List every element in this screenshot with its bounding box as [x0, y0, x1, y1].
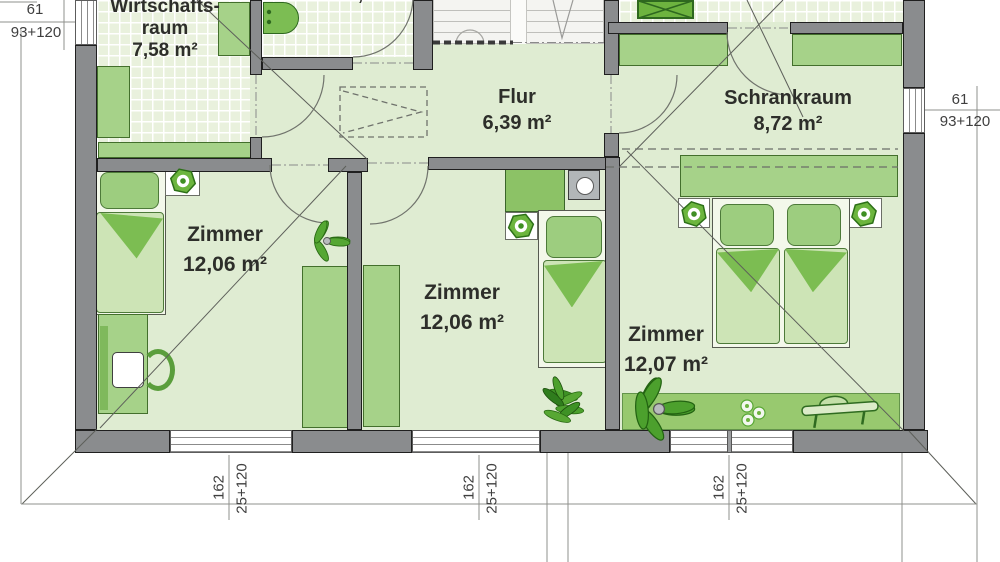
window — [170, 430, 292, 453]
room-label-schrankraum: Schrankraum 8,72 m² — [698, 85, 878, 137]
cabinet — [505, 165, 565, 212]
pillow — [720, 204, 774, 246]
dim-bottom-window-2-detail: 25+120 — [484, 449, 501, 529]
dim-bottom-window-3-detail: 25+120 — [734, 449, 751, 529]
blanket-fold — [717, 249, 779, 292]
dim-right-window-detail: 93+120 — [928, 113, 1000, 130]
wall — [75, 430, 170, 453]
dim-right-window-width: 61 — [938, 91, 982, 108]
wall — [97, 158, 272, 172]
shower-icon — [637, 0, 694, 19]
pillow — [100, 172, 159, 209]
toilet-icon — [263, 2, 299, 34]
chair — [112, 352, 144, 388]
wall — [604, 0, 619, 75]
chimney-icon — [568, 170, 600, 200]
wall — [413, 0, 433, 70]
wall — [292, 430, 412, 453]
room-label-zimmer-links: Zimmer 12,06 m² — [155, 220, 295, 281]
closet — [619, 34, 728, 66]
room-label-bad: 4,76 m² — [330, 0, 430, 6]
blanket-fold — [785, 249, 847, 292]
wall — [347, 172, 362, 430]
desk-edge — [100, 326, 108, 410]
wall — [75, 45, 97, 430]
nightstand — [678, 198, 710, 228]
mattress — [784, 248, 848, 344]
dim-left-window-detail: 93+120 — [2, 24, 70, 41]
chair-back — [141, 349, 175, 391]
wall — [262, 57, 353, 70]
room-area: 12,06 m² — [155, 250, 295, 280]
wall — [605, 157, 620, 430]
dim-bottom-window-2-width: 162 — [461, 448, 478, 528]
nightstand — [848, 198, 882, 228]
wall — [540, 430, 670, 453]
mattress — [96, 212, 164, 313]
wall — [790, 22, 903, 34]
closet — [792, 34, 902, 66]
wall — [428, 157, 608, 170]
room-label-zimmer-mitte: Zimmer 12,06 m² — [392, 278, 532, 339]
dim-bottom-window-1-width: 162 — [211, 448, 228, 528]
room-area: 8,72 m² — [698, 111, 878, 137]
dim-left-window-width: 61 — [10, 1, 60, 18]
pillow — [787, 204, 841, 246]
room-area: 12,06 m² — [392, 308, 532, 338]
wardrobe — [680, 155, 898, 197]
wall — [608, 22, 728, 34]
wall — [903, 133, 925, 430]
room-area: 4,76 m² — [330, 0, 430, 6]
window — [903, 88, 925, 133]
room-area: 7,58 m² — [85, 40, 245, 62]
wall — [604, 133, 619, 157]
dim-bottom-window-3-width: 162 — [711, 448, 728, 528]
dim-bottom-window-1-detail: 25+120 — [234, 449, 251, 529]
bedroom-rug — [622, 393, 900, 430]
room-label-flur: Flur 6,39 m² — [457, 84, 577, 136]
blanket-fold — [97, 213, 163, 259]
floor-plan: Wirtschafts- raum 7,58 m² 4,76 m² Flur 6… — [0, 0, 1000, 562]
wall — [250, 0, 262, 75]
room-area: 12,07 m² — [596, 350, 736, 380]
room-label-zimmer-rechts: Zimmer 12,07 m² — [596, 320, 736, 381]
nightstand — [505, 212, 538, 240]
wardrobe — [302, 266, 348, 428]
blanket-fold — [544, 261, 606, 307]
staircase-landing — [510, 0, 527, 44]
window-mullion — [727, 430, 732, 453]
counter — [98, 142, 252, 158]
room-label-wirtschaftsraum: Wirtschafts- raum 7,58 m² — [85, 0, 245, 62]
wall — [903, 0, 925, 88]
room-area: 6,39 m² — [457, 110, 577, 136]
pillow — [546, 216, 602, 258]
counter — [97, 66, 130, 138]
wall — [328, 158, 368, 172]
wall — [793, 430, 928, 453]
